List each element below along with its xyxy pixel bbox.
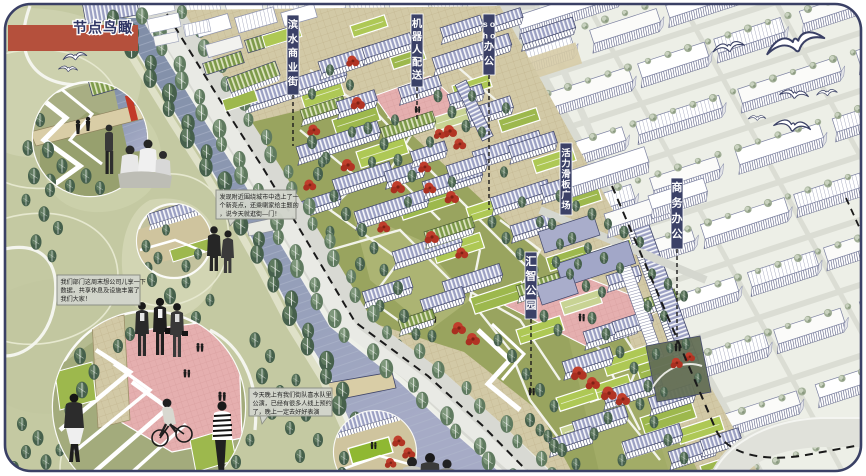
svg-text:人: 人 xyxy=(412,43,423,56)
svg-text:办: 办 xyxy=(484,40,495,53)
svg-text:水: 水 xyxy=(287,32,299,45)
svg-text:发现附近围绕城市中造上了一: 发现附近围绕城市中造上了一 xyxy=(220,193,299,201)
svg-text:办: 办 xyxy=(672,211,683,225)
svg-text:了，晚上一定去好好表演: 了，晚上一定去好好表演 xyxy=(253,408,320,416)
svg-text:公: 公 xyxy=(484,55,495,67)
svg-text:商: 商 xyxy=(672,180,683,194)
svg-text:公演，已经有很多人线上预约: 公演，已经有很多人线上预约 xyxy=(253,400,332,408)
svg-text:我们部门这周末想公司儿享一下: 我们部门这周末想公司儿享一下 xyxy=(61,278,146,286)
svg-text:s o: s o xyxy=(483,19,495,29)
svg-text:场: 场 xyxy=(561,200,570,211)
svg-text:广: 广 xyxy=(561,189,570,200)
svg-text:滑: 滑 xyxy=(561,168,570,179)
svg-text:公: 公 xyxy=(526,284,537,297)
svg-text:器: 器 xyxy=(411,31,423,43)
svg-text:，说今天就逛街—门！: ，说今天就逛街—门！ xyxy=(220,210,281,218)
svg-text:汇: 汇 xyxy=(526,255,537,268)
svg-text:h o: h o xyxy=(483,31,496,41)
svg-text:园: 园 xyxy=(526,299,537,312)
svg-text:个新亮点，还乘喇家给主题的: 个新亮点，还乘喇家给主题的 xyxy=(220,202,299,210)
svg-text:配: 配 xyxy=(412,57,423,69)
svg-text:务: 务 xyxy=(672,196,684,210)
svg-text:商: 商 xyxy=(288,47,298,60)
svg-text:活: 活 xyxy=(561,147,570,158)
svg-text:我们大家！: 我们大家！ xyxy=(61,295,91,303)
svg-text:力: 力 xyxy=(561,158,570,169)
svg-text:街: 街 xyxy=(287,75,298,88)
svg-text:节点鸟瞰: 节点鸟瞰 xyxy=(73,20,133,36)
svg-text:业: 业 xyxy=(288,61,298,74)
svg-text:送: 送 xyxy=(411,68,423,81)
svg-text:板: 板 xyxy=(561,179,571,190)
svg-text:今天晚上有我们街队喜水队里: 今天晚上有我们街队喜水队里 xyxy=(253,391,332,399)
svg-text:数据，共享休息及设施丰富了: 数据，共享休息及设施丰富了 xyxy=(61,287,140,295)
svg-text:机: 机 xyxy=(412,17,423,30)
svg-text:滨: 滨 xyxy=(288,18,299,31)
svg-text:公: 公 xyxy=(672,228,683,241)
svg-text:智: 智 xyxy=(526,269,537,283)
